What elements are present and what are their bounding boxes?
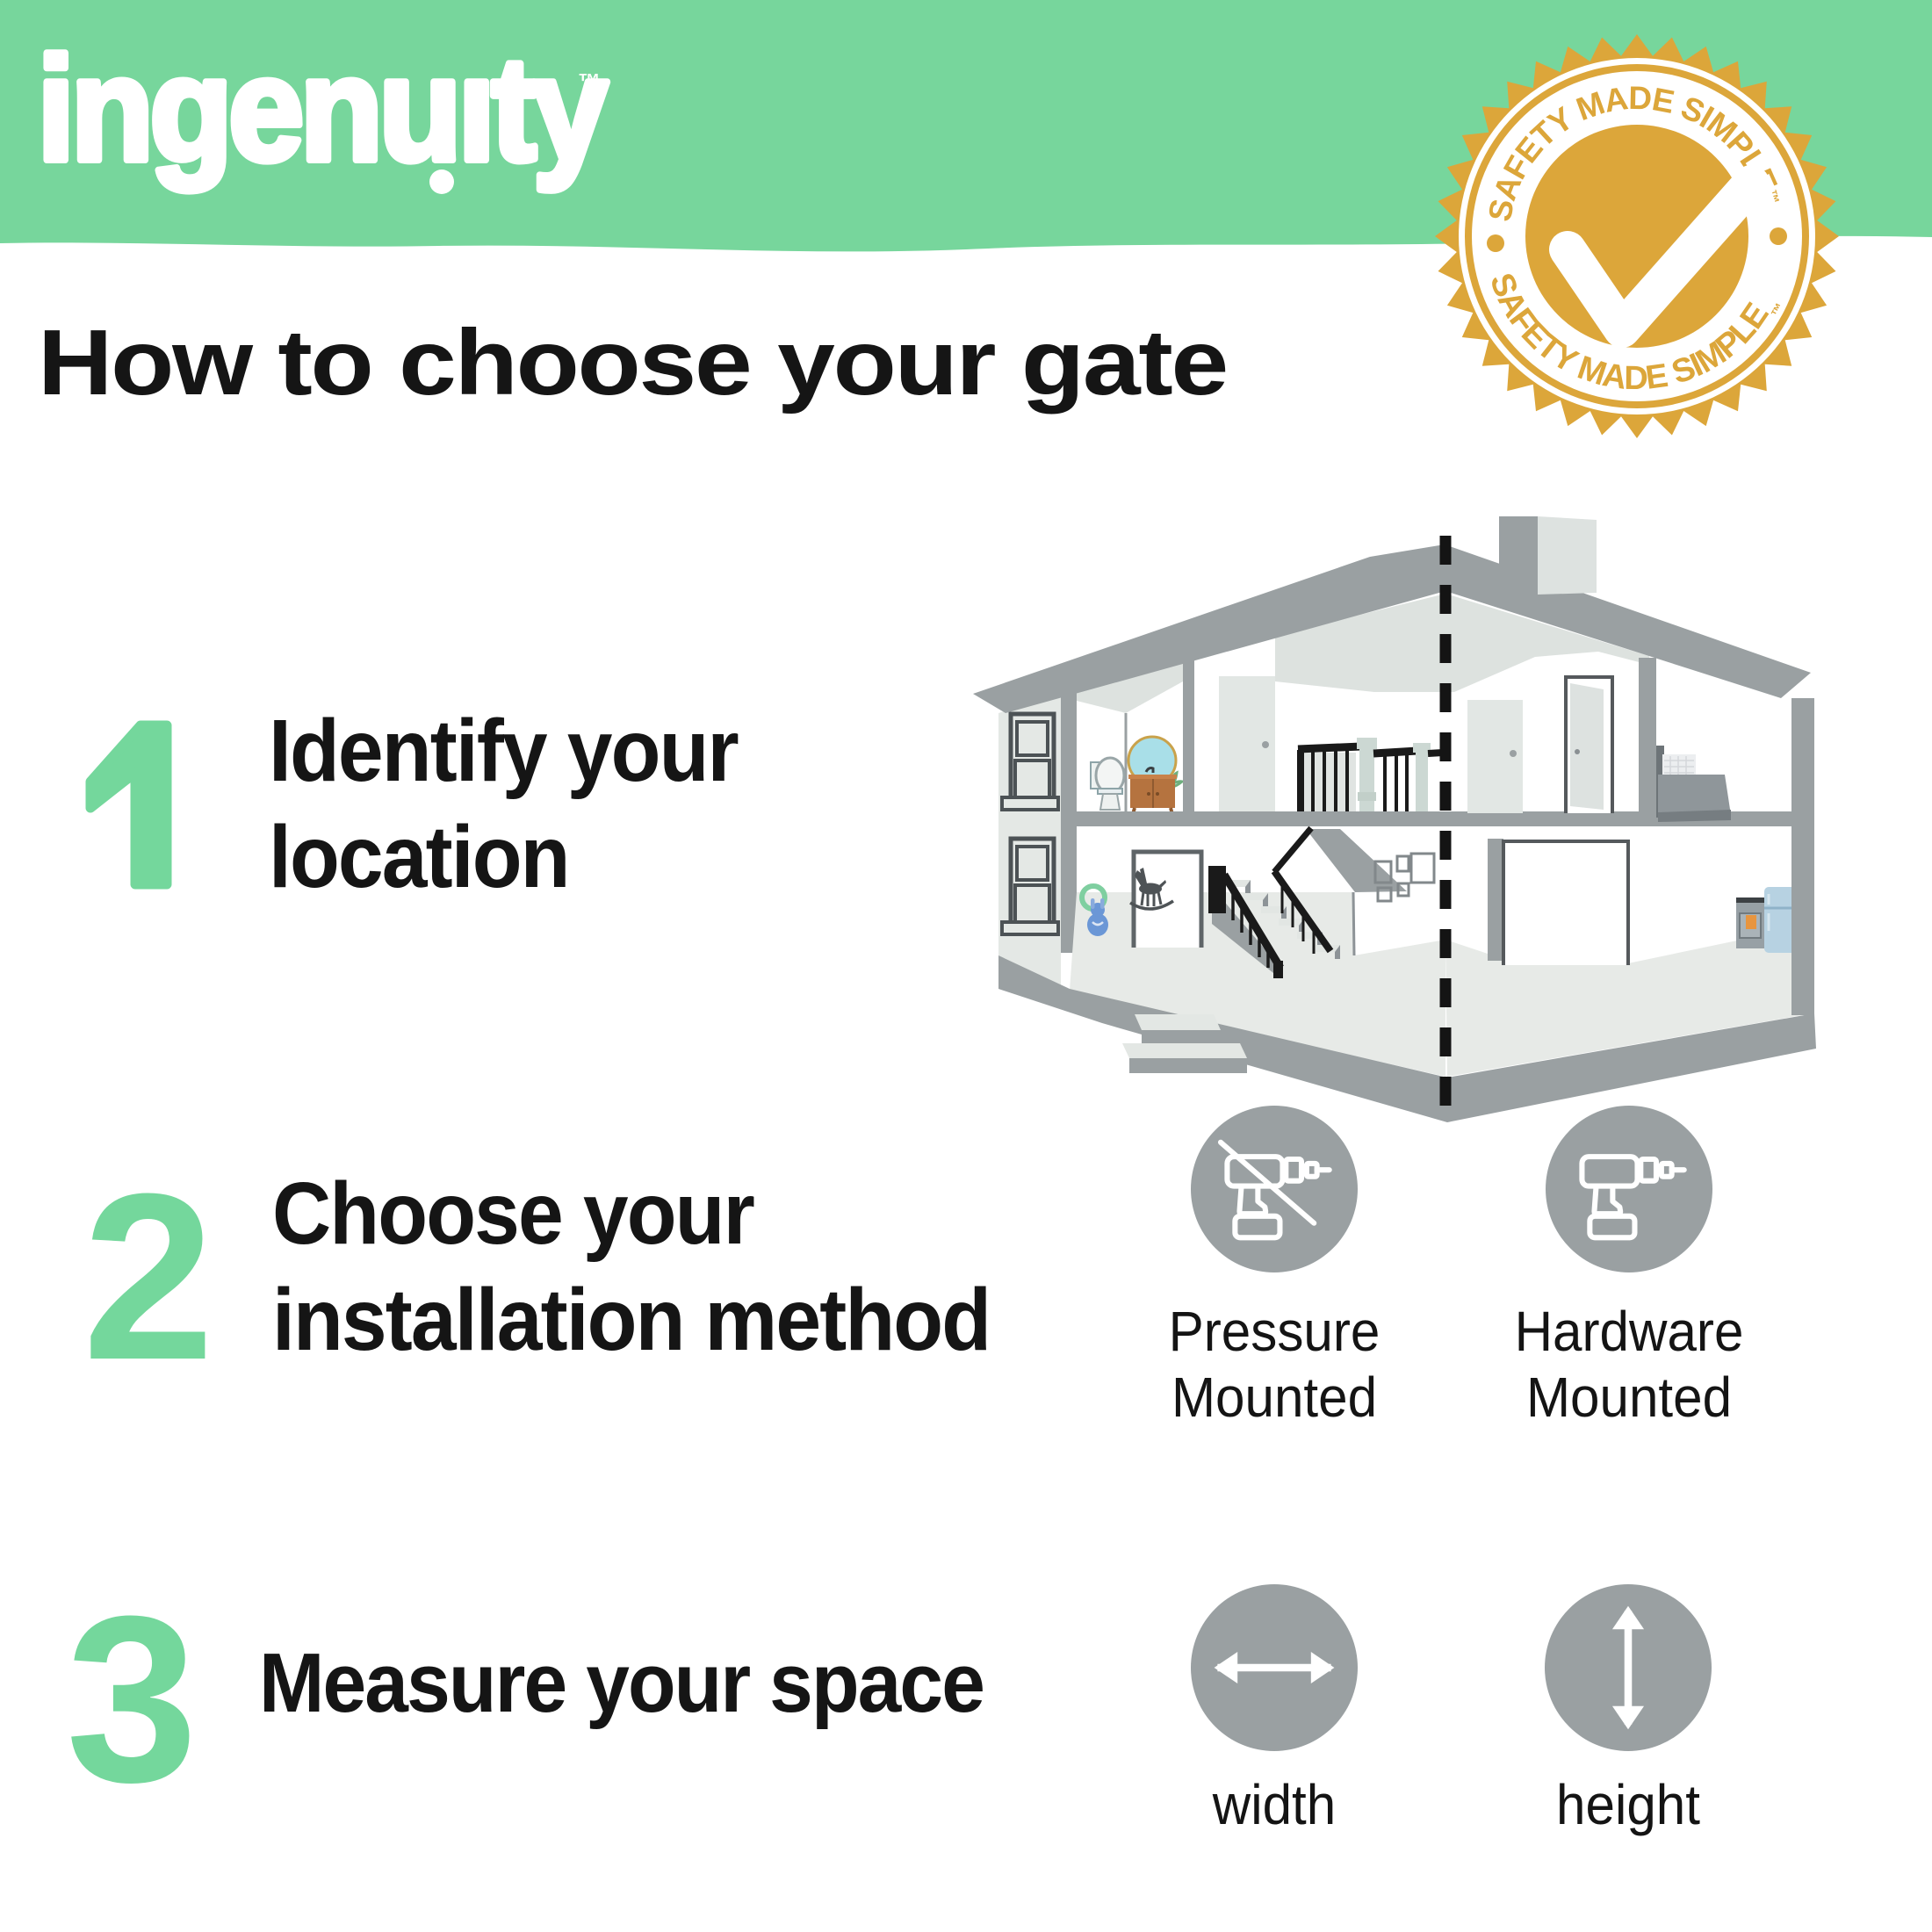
- svg-text:™: ™: [578, 68, 601, 95]
